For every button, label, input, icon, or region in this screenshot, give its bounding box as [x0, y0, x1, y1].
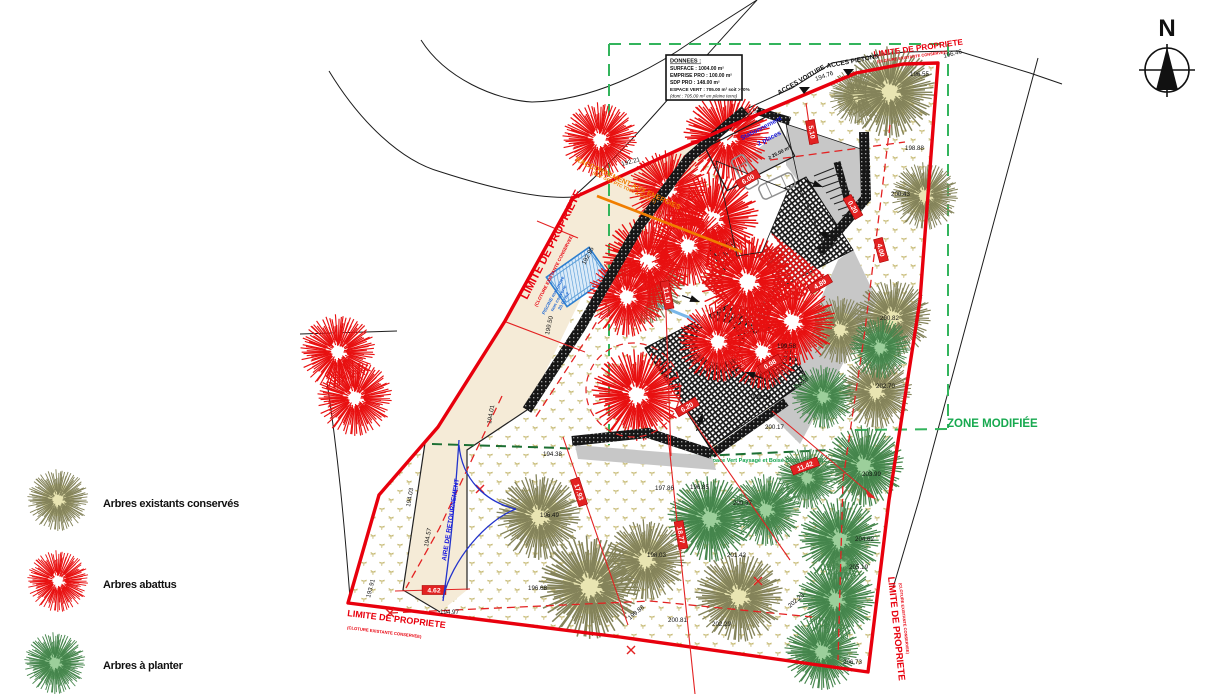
svg-text:Arbres à planter: Arbres à planter — [103, 660, 184, 672]
svg-text:202.70: 202.70 — [876, 383, 895, 390]
svg-text:(dont : 705.00 m² en pleine te: (dont : 705.00 m² en pleine terre) — [670, 94, 738, 99]
svg-text:198.88: 198.88 — [905, 145, 924, 152]
svg-text:194.97: 194.97 — [440, 609, 459, 616]
svg-text:194.38: 194.38 — [543, 451, 562, 458]
svg-text:200.81: 200.81 — [668, 617, 687, 624]
svg-text:198.03: 198.03 — [647, 552, 666, 559]
svg-text:196.68: 196.68 — [528, 585, 547, 592]
svg-text:ESPACE VERT : 705.00 m² soit >: ESPACE VERT : 705.00 m² soit >70% — [670, 87, 750, 92]
svg-text:204.62: 204.62 — [855, 536, 874, 543]
svg-text:196.49: 196.49 — [540, 512, 559, 519]
svg-text:200.17: 200.17 — [765, 424, 784, 431]
svg-text:200.82: 200.82 — [880, 315, 899, 322]
svg-text:Arbres existants conservés: Arbres existants conservés — [103, 498, 239, 510]
svg-text:197.86: 197.86 — [655, 485, 674, 492]
svg-text:EMPRISE PRO : 100.00 m²: EMPRISE PRO : 100.00 m² — [670, 73, 732, 79]
svg-text:205.19: 205.19 — [849, 564, 868, 571]
svg-text:DONNEES :: DONNEES : — [670, 59, 701, 65]
svg-text:SDP PRO : 148.00 m²: SDP PRO : 148.00 m² — [670, 80, 720, 86]
svg-text:206.73: 206.73 — [843, 659, 862, 666]
svg-text:196.55: 196.55 — [910, 71, 929, 78]
svg-text:196.85: 196.85 — [690, 484, 709, 491]
svg-text:Arbres abattus: Arbres abattus — [103, 579, 177, 591]
svg-text:SURFACE : 1004.00 m²: SURFACE : 1004.00 m² — [670, 66, 724, 72]
svg-text:4.62: 4.62 — [427, 587, 440, 594]
svg-text:200.43: 200.43 — [891, 191, 910, 198]
svg-text:201.42: 201.42 — [727, 552, 746, 559]
svg-text:200.37: 200.37 — [733, 500, 752, 507]
svg-text:202.29: 202.29 — [712, 621, 731, 628]
svg-text:ZONE MODIFIÉE: ZONE MODIFIÉE — [947, 417, 1038, 430]
svg-text:198.54: 198.54 — [752, 394, 771, 401]
svg-text:N: N — [1158, 15, 1175, 42]
svg-text:203.99: 203.99 — [862, 471, 881, 478]
svg-text:199.58: 199.58 — [777, 343, 796, 350]
